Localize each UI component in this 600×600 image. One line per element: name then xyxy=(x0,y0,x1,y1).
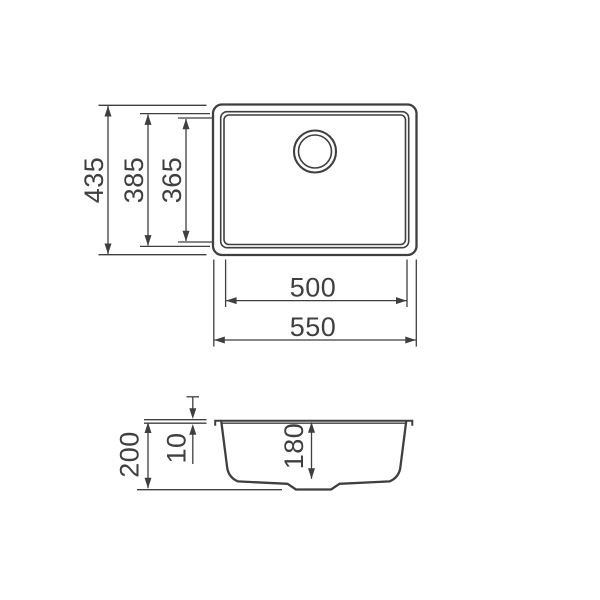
arrowhead-left xyxy=(214,337,225,344)
sink-rim-edge xyxy=(221,112,409,248)
dim-label-550: 550 xyxy=(290,312,337,342)
drain-inner-circle xyxy=(299,135,332,168)
arrowhead-up xyxy=(145,114,152,125)
arrowhead-down xyxy=(183,231,190,242)
sink-outer-outline xyxy=(213,105,417,256)
arrowhead-down xyxy=(145,235,152,246)
drain-outer-circle xyxy=(294,131,336,173)
dim-label-200: 200 xyxy=(115,431,145,478)
technical-drawing: 435 385 365 500 550 xyxy=(0,0,600,600)
dim-basin-depth: 180 xyxy=(279,422,315,479)
dim-label-10: 10 xyxy=(162,432,192,463)
arrowhead-down xyxy=(308,468,315,479)
arrowhead-right xyxy=(396,297,407,304)
arrowhead-up xyxy=(105,106,112,117)
dim-label-365: 365 xyxy=(157,157,187,204)
dim-label-500: 500 xyxy=(290,273,337,303)
dim-label-180: 180 xyxy=(279,423,309,470)
dim-rim-thickness: 10 xyxy=(162,397,200,464)
top-view xyxy=(213,105,417,256)
arrowhead-down xyxy=(105,244,112,255)
drawing-svg: 435 385 365 500 550 xyxy=(0,0,600,600)
arrowhead-down xyxy=(189,408,196,419)
arrowhead-up xyxy=(145,422,152,433)
dim-basin-width: 500 xyxy=(226,260,407,308)
arrowhead-down xyxy=(145,478,152,489)
arrowhead-right xyxy=(405,337,416,344)
dim-basin-height: 365 xyxy=(157,118,212,242)
dim-label-435: 435 xyxy=(79,157,109,204)
arrowhead-up xyxy=(183,119,190,130)
dim-label-385: 385 xyxy=(119,157,149,204)
dim-overall-depth: 200 xyxy=(115,422,152,488)
arrowhead-left xyxy=(226,297,237,304)
